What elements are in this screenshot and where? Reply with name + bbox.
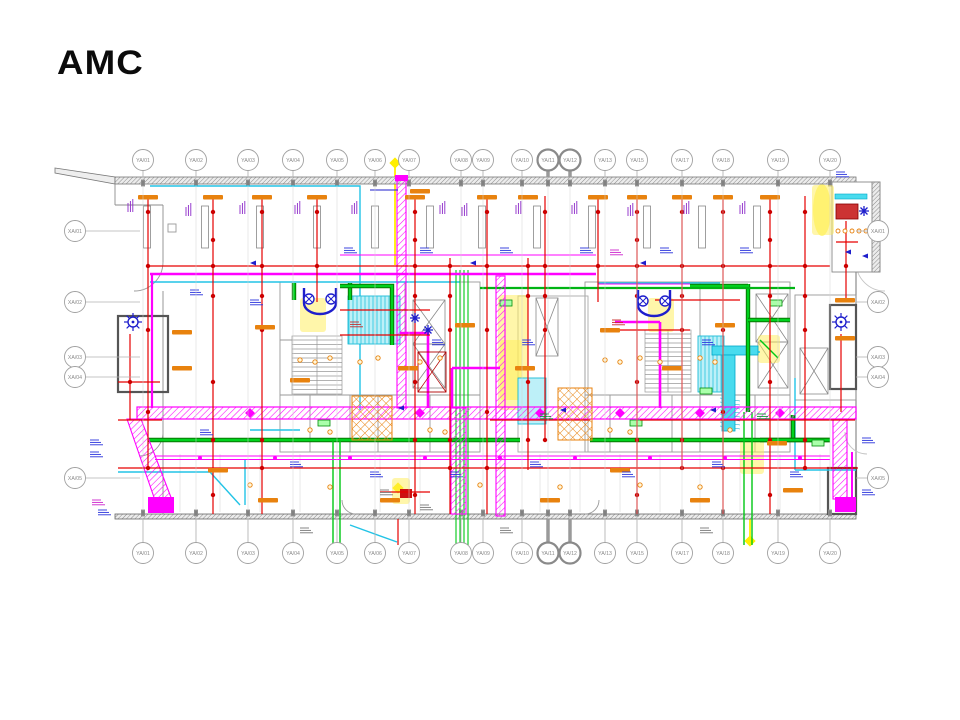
grid-bubble-label: YA/04 <box>286 551 300 557</box>
grid-bubble-label: YA/02 <box>189 158 203 164</box>
grid-bubble-label: YA/18 <box>716 551 730 557</box>
grid-bubble-label: YA/09 <box>476 158 490 164</box>
grid-bubble-right: XA/02 <box>856 292 889 313</box>
grid-bubble-label: YA/15 <box>630 551 644 557</box>
grid-bubble-label: YA/11 <box>541 158 554 164</box>
grid-bubble-top: YA/03 <box>238 150 259 178</box>
grid-bubble-label: YA/11 <box>541 551 554 557</box>
grid-bubble-label: YA/07 <box>402 158 416 164</box>
grid-bubble-bot: YA/15 <box>627 519 648 564</box>
grid-bubble-left: XA/05 <box>65 468 141 489</box>
grid-bubble-top: YA/13 <box>595 150 616 178</box>
grid-bubble-bot: YA/05 <box>327 519 348 564</box>
grid-bubble-bot: YA/12 <box>560 519 581 564</box>
grid-bubble-label: YA/06 <box>368 158 382 164</box>
grid-bubble-top: YA/08 <box>451 150 472 178</box>
grid-bubble-label: YA/05 <box>330 551 344 557</box>
grid-bubble-label: YA/18 <box>716 158 730 164</box>
grid-bubble-bot: YA/10 <box>512 519 533 564</box>
grid-bubble-label: YA/09 <box>476 551 490 557</box>
grid-bubble-bot: YA/03 <box>238 519 259 564</box>
grid-bubble-label: YA/04 <box>286 158 300 164</box>
grid-bubble-top: YA/02 <box>186 150 207 178</box>
grid-bubble-label: YA/01 <box>136 551 150 557</box>
grid-bubble-top: YA/09 <box>473 150 494 178</box>
grid-bubble-top: YA/12 <box>560 150 581 178</box>
grid-bubble-label: XA/02 <box>871 300 885 306</box>
grid-bubble-bot: YA/19 <box>768 519 789 564</box>
grid-bubble-top: YA/04 <box>283 150 304 178</box>
grid-bubble-top: YA/18 <box>713 150 734 178</box>
grid-bubble-label: XA/04 <box>871 375 885 381</box>
grid-bubble-top: YA/06 <box>365 150 386 178</box>
grid-bubble-bot: YA/07 <box>399 519 420 564</box>
grid-bubble-label: YA/20 <box>823 551 837 557</box>
grid-bubble-left: XA/01 <box>65 221 141 242</box>
grid-bubble-bot: YA/06 <box>365 519 386 564</box>
grid-bubble-bot: YA/01 <box>133 519 154 564</box>
grid-bubble-right: XA/05 <box>856 468 889 489</box>
grid-bubble-bot: YA/13 <box>595 519 616 564</box>
grid-bubble-label: YA/02 <box>189 551 203 557</box>
floor-plan-drawing: YA/01YA/01YA/02YA/02YA/03YA/03YA/04YA/04… <box>0 0 960 720</box>
grid-bubble-top: YA/10 <box>512 150 533 178</box>
grid-bubble-label: XA/03 <box>68 355 82 361</box>
grid-bubble-right: XA/04 <box>856 367 889 388</box>
grid-bubble-label: XA/03 <box>871 355 885 361</box>
grid-bubble-label: YA/13 <box>598 551 612 557</box>
grid-bubble-top: YA/01 <box>133 150 154 178</box>
grid-bubble-label: YA/17 <box>675 551 689 557</box>
grid-bubble-label: YA/19 <box>771 158 785 164</box>
grid-bubble-left: XA/02 <box>65 292 141 313</box>
grid-bubble-label: XA/04 <box>68 375 82 381</box>
grid-bubble-label: YA/07 <box>402 551 416 557</box>
grid-bubble-label: YA/12 <box>563 551 577 557</box>
grid-bubble-label: YA/06 <box>368 551 382 557</box>
grid-bubble-top: YA/19 <box>768 150 789 178</box>
grid-bubble-label: XA/01 <box>68 229 82 235</box>
grid-bubble-label: YA/03 <box>241 158 255 164</box>
grid-bubble-label: YA/03 <box>241 551 255 557</box>
grid-bubble-bot: YA/20 <box>820 519 841 564</box>
grid-bubble-label: YA/08 <box>454 158 468 164</box>
grid-bubble-label: YA/10 <box>515 551 529 557</box>
grid-bubble-label: YA/08 <box>454 551 468 557</box>
grid-bubble-top: YA/11 <box>538 150 559 178</box>
grid-bubble-label: YA/20 <box>823 158 837 164</box>
grid-bubble-bot: YA/09 <box>473 519 494 564</box>
grid-bubble-label: YA/10 <box>515 158 529 164</box>
grid-bubble-left: XA/04 <box>65 367 141 388</box>
grid-bubble-top: YA/17 <box>672 150 693 178</box>
grid-bubble-label: YA/19 <box>771 551 785 557</box>
grid-bubble-bot: YA/18 <box>713 519 734 564</box>
grid-bubble-top: YA/20 <box>820 150 841 178</box>
grid-bubble-bot: YA/17 <box>672 519 693 564</box>
grid-bubble-label: YA/15 <box>630 158 644 164</box>
grid-bubble-right: XA/03 <box>856 347 889 368</box>
grid-bubble-top: YA/15 <box>627 150 648 178</box>
grid-bubble-label: XA/05 <box>871 476 885 482</box>
grid-bubble-bot: YA/04 <box>283 519 304 564</box>
grid-bubble-bot: YA/02 <box>186 519 207 564</box>
grid-bubble-label: YA/17 <box>675 158 689 164</box>
grid-bubble-label: XA/01 <box>871 229 885 235</box>
grid-bubble-left: XA/03 <box>65 347 141 368</box>
grid-bubble-top: YA/05 <box>327 150 348 178</box>
grid-bubble-label: XA/05 <box>68 476 82 482</box>
slide: { "slide": { "background": "#ffffff", "l… <box>0 0 960 720</box>
grid-bubble-label: YA/01 <box>136 158 150 164</box>
grid-bubble-label: XA/02 <box>68 300 82 306</box>
grid-bubble-label: YA/12 <box>563 158 577 164</box>
grid-bubble-top: YA/07 <box>399 150 420 178</box>
grid-bubble-bot: YA/11 <box>538 519 559 564</box>
grid-bubble-label: YA/13 <box>598 158 612 164</box>
grid-bubble-label: YA/05 <box>330 158 344 164</box>
